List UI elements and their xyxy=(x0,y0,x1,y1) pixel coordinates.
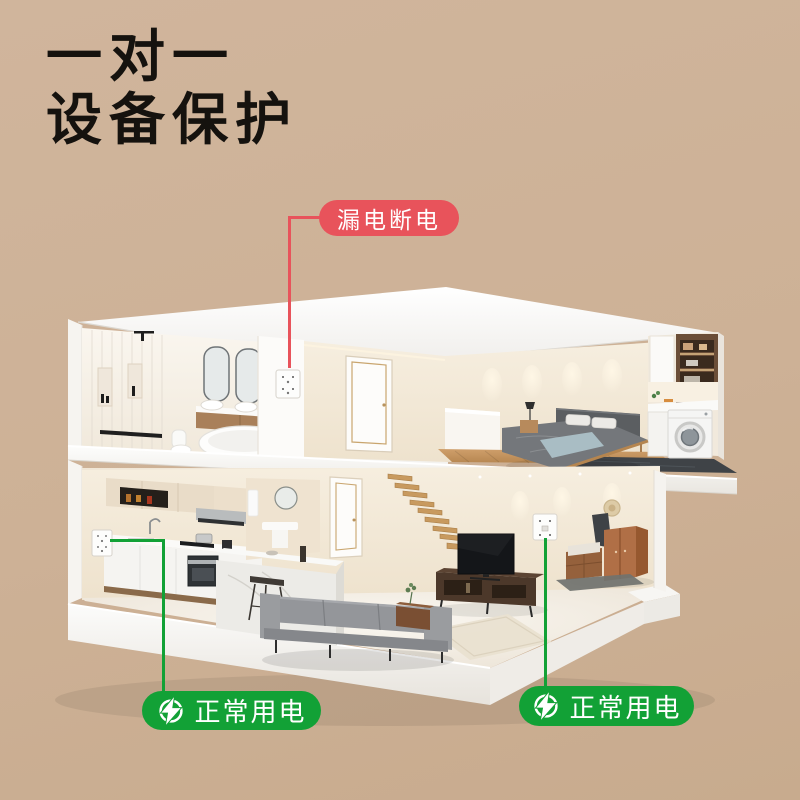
round-mirror xyxy=(275,487,297,509)
headline: 一对一 设备保护 xyxy=(46,26,298,151)
lightning-bolt-icon xyxy=(156,696,186,726)
normal-power-badge-living: 正常用电 xyxy=(519,686,694,726)
towel xyxy=(248,490,258,516)
normal-power-badge-kitchen: 正常用电 xyxy=(142,691,321,730)
leakage-connector-line-horizontal xyxy=(288,216,320,219)
powder-room xyxy=(246,478,320,560)
washing-machine xyxy=(668,410,712,458)
bathroom-wall-socket xyxy=(276,370,300,398)
leakage-connector-line-vertical xyxy=(288,216,291,368)
kitchen-connector-line-vertical xyxy=(162,539,165,692)
kitchen-connector-line-horizontal xyxy=(110,539,164,542)
headline-line-2: 设备保护 xyxy=(46,89,298,152)
lower-door xyxy=(330,477,362,558)
lower-cut-wall xyxy=(68,460,82,604)
leakage-callout-badge: 漏电断电 xyxy=(319,200,459,236)
normal-power-label-kitchen: 正常用电 xyxy=(194,692,306,729)
basin xyxy=(262,522,298,530)
living-room-wall-socket xyxy=(533,514,557,540)
living-connector-line-vertical xyxy=(544,538,547,687)
partition-wall xyxy=(258,336,304,463)
kitchen-wall-socket xyxy=(92,530,112,556)
headline-line-1: 一对一 xyxy=(46,26,298,89)
upper-cut-wall xyxy=(68,319,82,452)
leakage-callout-label: 漏电断电 xyxy=(337,201,441,235)
television xyxy=(458,534,514,580)
normal-power-label-living: 正常用电 xyxy=(569,688,681,725)
product-banner: 一对一 设备保护 漏电断电 正常用电 正常用电 xyxy=(0,0,800,800)
lightning-bolt-icon xyxy=(531,691,561,721)
laundry-nook xyxy=(648,332,724,460)
upper-hallway xyxy=(304,341,445,465)
